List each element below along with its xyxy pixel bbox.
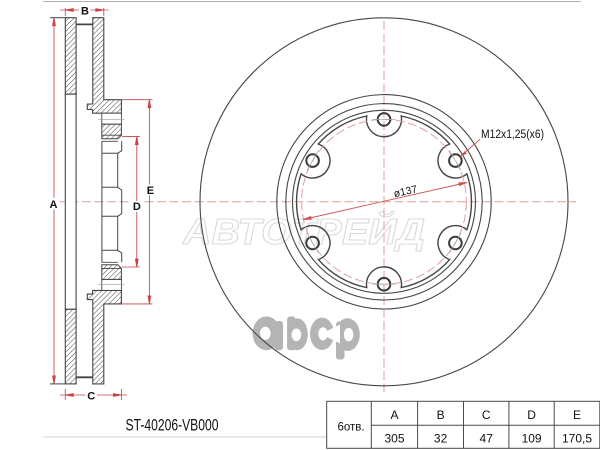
svg-text:ST-40206-VB000: ST-40206-VB000 (126, 416, 219, 434)
svg-text:170,5: 170,5 (562, 432, 592, 446)
svg-text:A: A (390, 408, 398, 422)
svg-text:C: C (482, 408, 491, 422)
svg-text:E: E (147, 185, 154, 197)
svg-text:D: D (527, 408, 536, 422)
svg-text:47: 47 (480, 432, 494, 446)
svg-text:ø137: ø137 (393, 183, 419, 200)
svg-text:B: B (437, 408, 445, 422)
svg-text:109: 109 (522, 432, 542, 446)
svg-text:A: A (50, 199, 58, 211)
svg-text:D: D (133, 201, 141, 213)
svg-text:C: C (87, 391, 95, 403)
svg-text:32: 32 (434, 432, 448, 446)
svg-text:B: B (81, 5, 89, 17)
svg-text:M12x1,25(x6): M12x1,25(x6) (481, 129, 544, 141)
svg-text:305: 305 (384, 432, 404, 446)
svg-text:6отв.: 6отв. (338, 422, 365, 434)
svg-text:E: E (573, 408, 581, 422)
